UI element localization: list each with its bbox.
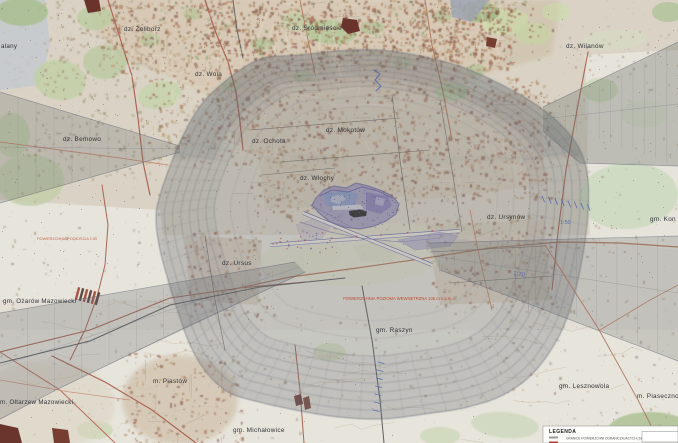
svg-text:dz. Ochota: dz. Ochota bbox=[252, 138, 286, 145]
svg-text:gm. Raszyn: gm. Raszyn bbox=[376, 327, 413, 334]
svg-text:dz. Ursus: dz. Ursus bbox=[222, 260, 252, 267]
svg-text:alany: alany bbox=[1, 43, 18, 50]
svg-text:m. Piaseczno: m. Piaseczno bbox=[637, 393, 678, 400]
svg-text:gm. Ożarów Mazowiecki: gm. Ożarów Mazowiecki bbox=[3, 298, 76, 305]
svg-text:dz. Śródmieście: dz. Śródmieście bbox=[292, 23, 342, 32]
svg-text:gm. Kon: gm. Kon bbox=[650, 216, 676, 223]
svg-text:dz. Mokotów: dz. Mokotów bbox=[326, 127, 365, 134]
svg-text:POWIERZCHNIA POZIOMA WEWNETRZN: POWIERZCHNIA POZIOMA WEWNETRZNA 105 m n.… bbox=[343, 296, 453, 301]
svg-text:m. Piastów: m. Piastów bbox=[153, 378, 187, 385]
svg-text:LEGENDA: LEGENDA bbox=[549, 429, 576, 435]
svg-text:gm. Michałowice: gm. Michałowice bbox=[233, 427, 285, 434]
svg-text:dz. Bemowo: dz. Bemowo bbox=[63, 136, 101, 143]
svg-text:dz. Wola: dz. Wola bbox=[195, 71, 222, 78]
svg-text:dz. Wilanów: dz. Wilanów bbox=[566, 43, 604, 50]
svg-text:m. Ołtarzew Mazowiecki: m. Ołtarzew Mazowiecki bbox=[0, 399, 73, 406]
svg-text:dz. Żoliborz: dz. Żoliborz bbox=[124, 24, 161, 33]
svg-text:gm. Lesznowola: gm. Lesznowola bbox=[559, 383, 610, 390]
svg-text:dz. Ursynów: dz. Ursynów bbox=[487, 214, 526, 221]
svg-text:dz. Włochy: dz. Włochy bbox=[300, 175, 335, 182]
svg-text:POWIERZCHNIA PODEJSCIA 1:50: POWIERZCHNIA PODEJSCIA 1:50 bbox=[37, 237, 97, 241]
